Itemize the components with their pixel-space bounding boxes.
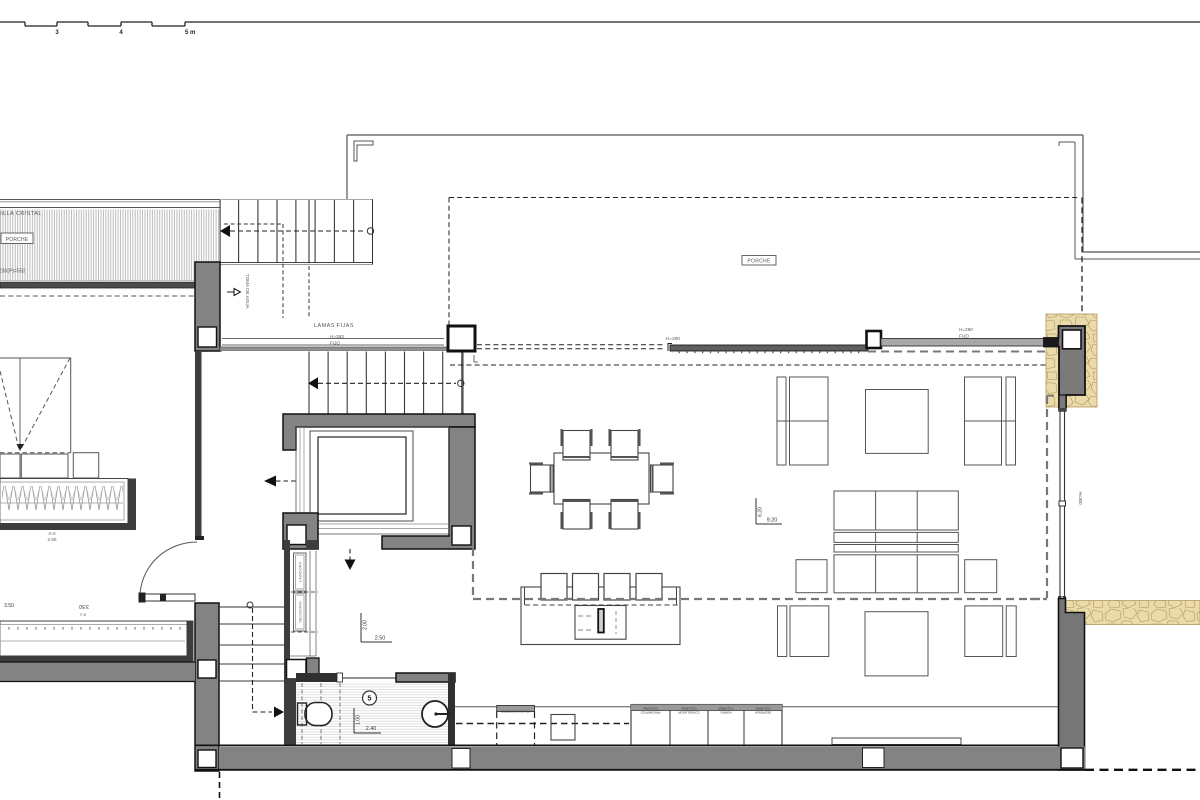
svg-text:2.50: 2.50 — [375, 636, 386, 642]
svg-text:A-2: A-2 — [48, 531, 56, 536]
svg-text:H=290: H=290 — [959, 327, 973, 332]
svg-text:COLUMNA: COLUMNA — [718, 707, 733, 711]
svg-text:2.40: 2.40 — [366, 726, 377, 732]
svg-text:COLUMNA: COLUMNA — [681, 707, 696, 711]
svg-text:COLUMNA: COLUMNA — [643, 707, 658, 711]
svg-text:H=300: H=300 — [1078, 491, 1083, 505]
svg-text:3.50: 3.50 — [79, 603, 89, 609]
svg-text:PORCHE: PORCHE — [747, 259, 771, 265]
svg-text:4: 4 — [119, 30, 123, 36]
svg-text:ARMARIO ESCOBERO: ARMARIO ESCOBERO — [500, 710, 531, 714]
svg-text:SECADORA: SECADORA — [299, 601, 303, 623]
svg-text:FRIGORIFICO: FRIGORIFICO — [640, 711, 660, 715]
svg-text:9.20: 9.20 — [767, 518, 778, 524]
svg-text:LAVADORA: LAVADORA — [299, 561, 303, 582]
svg-text:HORNO: HORNO — [720, 711, 732, 715]
svg-text:230(P)=550: 230(P)=550 — [0, 269, 25, 275]
svg-text:BARANDILLA CRISTAL: BARANDILLA CRISTAL — [0, 211, 42, 217]
svg-text:FIJO: FIJO — [959, 334, 969, 339]
svg-text:6.20: 6.20 — [758, 507, 764, 517]
svg-text:3.50: 3.50 — [4, 603, 14, 609]
svg-text:3: 3 — [55, 30, 59, 36]
svg-text:5: 5 — [367, 694, 371, 703]
svg-text:1.00: 1.00 — [356, 715, 362, 725]
svg-text:2.00: 2.00 — [363, 620, 369, 630]
svg-text:H=200: H=200 — [666, 336, 680, 341]
svg-text:TOMA DE AGUA: TOMA DE AGUA — [245, 274, 250, 310]
svg-text:A-1: A-1 — [79, 613, 86, 618]
svg-text:COLUMNA: COLUMNA — [755, 707, 770, 711]
svg-text:PORCHE: PORCHE — [6, 237, 29, 243]
svg-text:2.50: 2.50 — [48, 537, 57, 542]
svg-text:DESPENSA: DESPENSA — [755, 711, 771, 715]
svg-text:5 m: 5 m — [185, 30, 195, 36]
svg-text:LAMAS FIJAS: LAMAS FIJAS — [314, 323, 354, 329]
svg-text:CONGELADOR: CONGELADOR — [678, 711, 700, 715]
